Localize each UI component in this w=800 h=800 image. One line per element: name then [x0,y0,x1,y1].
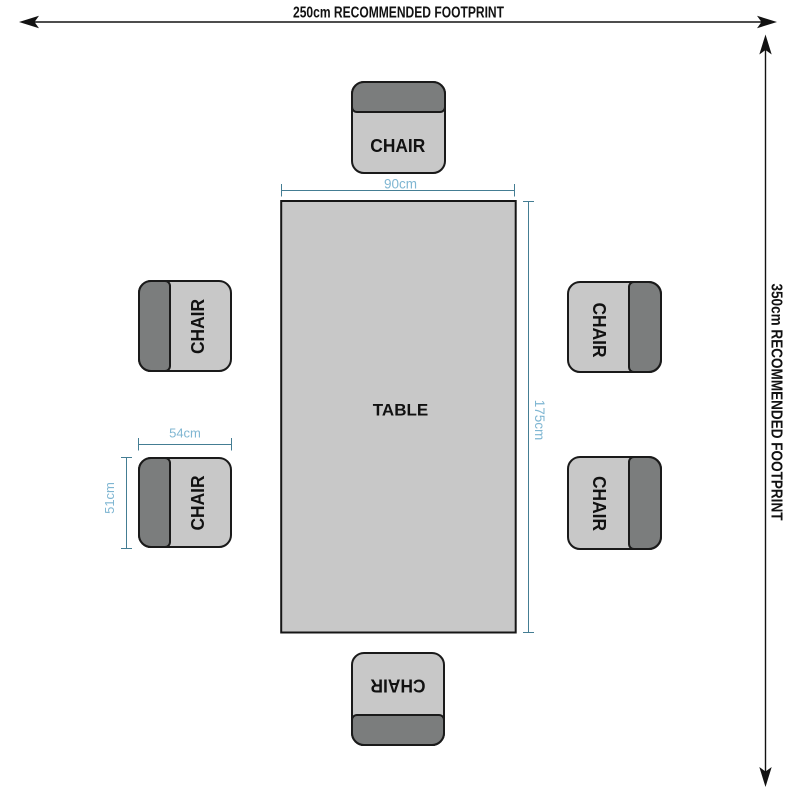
svg-text:54cm: 54cm [169,426,201,441]
svg-text:350cm RECOMMENDED FOOTPRINT: 350cm RECOMMENDED FOOTPRINT [768,284,785,521]
svg-text:CHAIR: CHAIR [589,303,609,358]
svg-text:51cm: 51cm [102,482,117,514]
svg-text:CHAIR: CHAIR [589,476,609,531]
svg-text:CHAIR: CHAIR [371,676,426,696]
svg-text:175cm: 175cm [532,400,547,441]
svg-text:90cm: 90cm [384,176,417,191]
svg-text:CHAIR: CHAIR [188,476,208,531]
svg-text:CHAIR: CHAIR [370,136,425,156]
svg-text:CHAIR: CHAIR [188,299,208,354]
svg-text:250cm RECOMMENDED FOOTPRINT: 250cm RECOMMENDED FOOTPRINT [293,5,504,22]
svg-text:TABLE: TABLE [373,401,428,420]
